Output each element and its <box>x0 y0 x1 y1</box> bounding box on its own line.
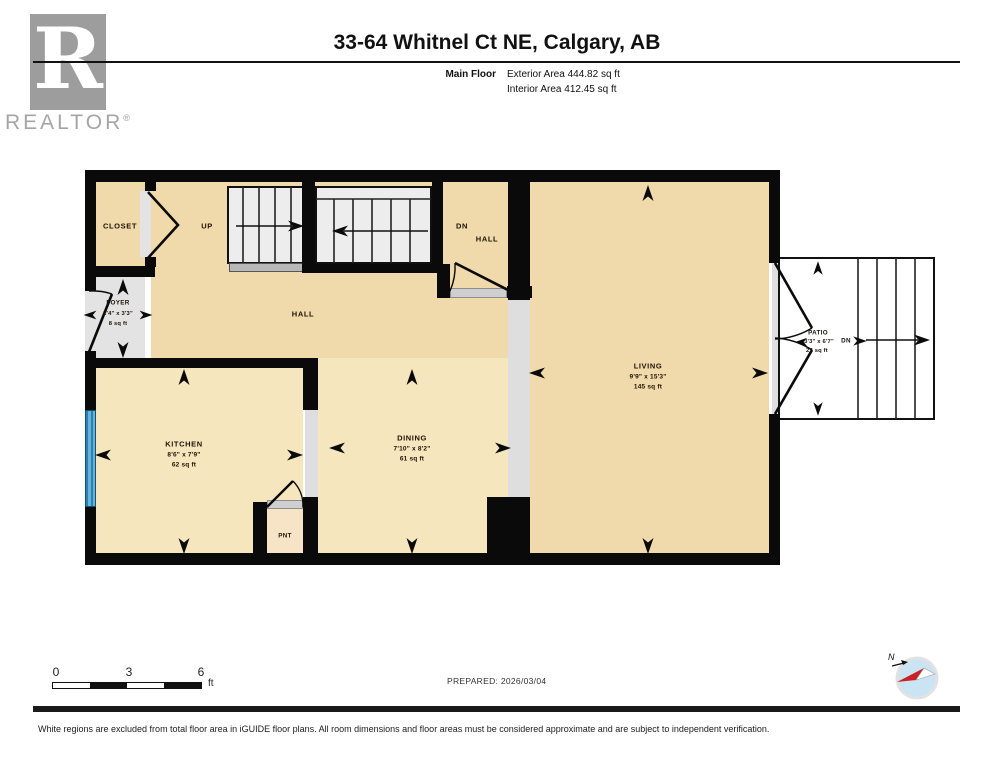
wall-kitchen-top <box>85 358 318 368</box>
scale-end: 6 <box>198 665 205 679</box>
compass: N <box>884 648 948 708</box>
interior-area: Interior Area 412.45 sq ft <box>507 84 617 95</box>
floorplan-page: R REALTOR® 33-64 Whitnel Ct NE, Calgary,… <box>0 0 994 768</box>
pantry-door-sill <box>267 500 303 509</box>
scale-bar <box>52 682 202 689</box>
dims-dining: 7'10" x 8'2" <box>394 446 431 453</box>
wall-closet-stub-bottom <box>145 257 156 267</box>
kitchen-window <box>85 410 96 507</box>
realtor-logo-letter: R <box>33 17 103 101</box>
hall-door-sill <box>450 288 507 298</box>
dims-kitchen: 8'6" x 7'9" <box>167 452 200 459</box>
wall-dn-right <box>432 182 443 273</box>
wall-closet-bottom <box>85 266 155 277</box>
wall-right-lower <box>769 414 780 565</box>
scale-unit: ft <box>208 678 214 689</box>
label-closet: CLOSET <box>103 222 137 231</box>
scale-segment <box>127 683 164 688</box>
realtor-wordmark: REALTOR® <box>5 111 130 135</box>
label-living: LIVING <box>634 362 663 371</box>
area-foyer: 8 sq ft <box>109 321 127 327</box>
wall-stair-divider <box>302 170 315 273</box>
area-patio: 22 sq ft <box>806 348 828 354</box>
wall-living-west-top <box>508 170 530 300</box>
scale-mid: 3 <box>126 665 133 679</box>
exterior-area: Exterior Area 444.82 sq ft <box>507 69 620 80</box>
prepared-date: PREPARED: 2026/03/04 <box>447 676 546 686</box>
stairs-up <box>227 186 308 264</box>
wall-dn-bottom <box>310 264 443 273</box>
stairs-up-landing <box>229 263 307 272</box>
wall-pantry-left <box>253 502 267 553</box>
compass-n-label: N <box>888 652 895 662</box>
scale-segment <box>53 683 90 688</box>
wall-living-west-block <box>487 497 530 553</box>
label-dn: DN <box>456 222 468 231</box>
scale-start: 0 <box>53 665 60 679</box>
scale-segment <box>164 683 201 688</box>
dining-living-opening <box>508 300 530 497</box>
room-pantry <box>267 509 303 553</box>
dims-living: 9'9" x 15'3" <box>630 374 667 381</box>
header-rule <box>33 61 960 63</box>
dims-foyer: 2'4" x 3'3" <box>103 311 133 317</box>
stairs-down <box>315 186 432 264</box>
label-hall-upper: HALL <box>476 235 498 244</box>
area-kitchen: 62 sq ft <box>172 462 196 469</box>
label-patio: PATIO <box>808 330 828 337</box>
scale-segment <box>90 683 127 688</box>
wall-right-upper <box>769 170 780 263</box>
label-up: UP <box>201 222 213 231</box>
wall-kitchen-east-upper <box>303 358 318 410</box>
disclaimer-text: White regions are excluded from total fl… <box>38 724 958 734</box>
area-living: 145 sq ft <box>634 384 662 391</box>
label-hall: HALL <box>292 310 314 319</box>
area-dining: 61 sq ft <box>400 456 424 463</box>
label-kitchen: KITCHEN <box>165 440 203 449</box>
wall-hall-stub-left <box>437 264 450 298</box>
label-foyer: FOYER <box>106 300 129 307</box>
patio-door-sill <box>772 263 778 414</box>
label-pantry: PNT <box>278 533 292 540</box>
label-patio-dn: DN <box>841 338 851 345</box>
registered-mark: ® <box>123 113 130 123</box>
page-title: 33-64 Whitnel Ct NE, Calgary, AB <box>0 31 994 55</box>
wall-kitchen-east-lower <box>303 497 318 553</box>
kitchen-dining-opening <box>305 410 318 497</box>
wall-top <box>85 170 780 182</box>
label-dining: DINING <box>397 434 427 443</box>
wall-bottom <box>85 553 780 565</box>
wall-closet-stub-top <box>145 182 156 191</box>
footer-divider <box>33 706 960 712</box>
floor-label: Main Floor <box>380 69 496 80</box>
dims-patio: 3'3" x 6'7" <box>804 339 834 345</box>
closet-door-opening <box>140 191 151 257</box>
patio-outline <box>778 257 935 420</box>
